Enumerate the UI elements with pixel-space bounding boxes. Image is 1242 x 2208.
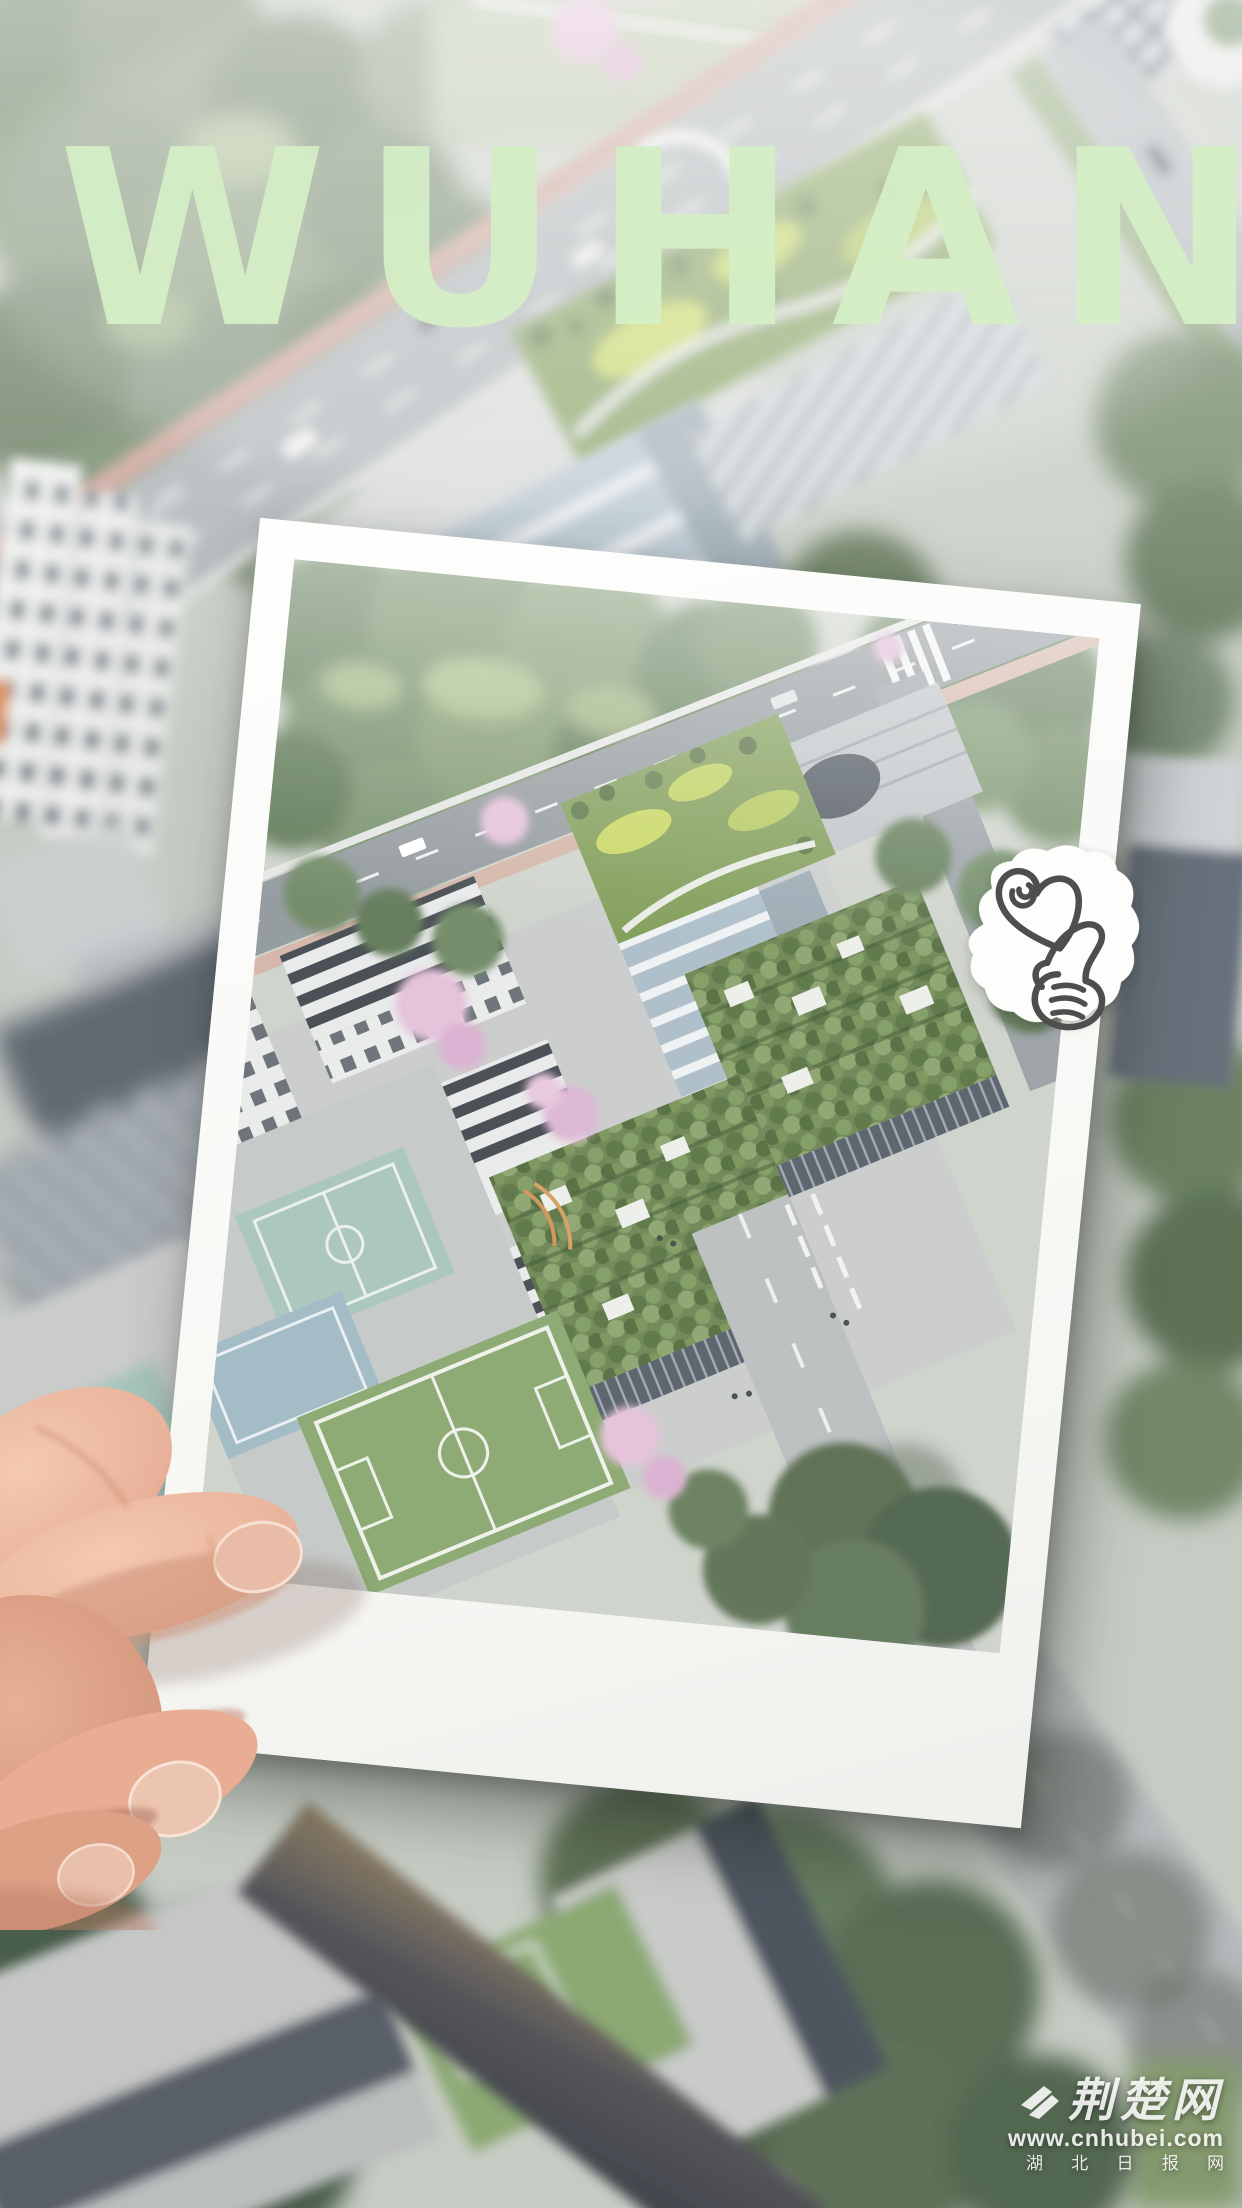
holding-hand xyxy=(0,1385,380,1930)
watermark-url: www.cnhubei.com xyxy=(1008,2125,1224,2151)
watermark-brand: 荆楚网 xyxy=(1068,2077,1224,2123)
like-sticker xyxy=(951,835,1144,1046)
cnhubei-logo-icon xyxy=(1016,2077,1062,2123)
poster-title: WUHAN xyxy=(58,118,1242,362)
thumbs-up-heart-icon xyxy=(951,835,1144,1046)
wuhan-aerial-poster: WUHAN xyxy=(0,0,1242,2208)
watermark-site-name: 湖北日报网 xyxy=(1026,2154,1224,2174)
watermark: 荆楚网 www.cnhubei.com 湖北日报网 xyxy=(1008,2077,1224,2174)
